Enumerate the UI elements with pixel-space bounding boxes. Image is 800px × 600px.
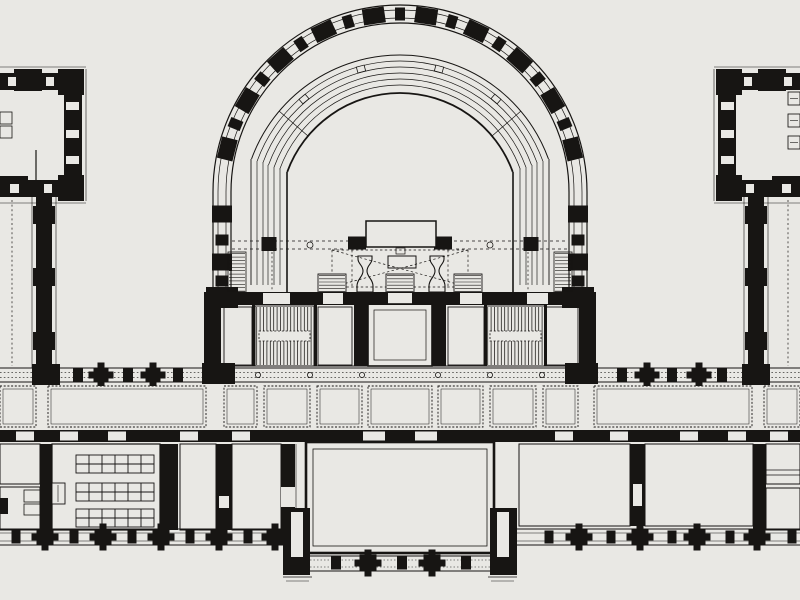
auditorium-outer-ring (206, 5, 594, 308)
west-pavilion (0, 67, 86, 203)
east-gallery-wall (744, 197, 788, 368)
south-range-spine-wall (0, 430, 800, 442)
auditorium-floor-and-tribune (232, 221, 568, 292)
floor-plan-svg (0, 0, 800, 600)
south-east-rooms (519, 444, 800, 530)
south-west-rooms-classroom (0, 444, 296, 530)
corridor-room-band (0, 386, 800, 427)
floor-plan-page (0, 0, 800, 600)
great-hall (283, 442, 517, 581)
south-facade-colonnade (0, 524, 800, 551)
auditorium-south-wall (204, 292, 596, 305)
central-block-and-stairs (204, 303, 596, 367)
east-pavilion (714, 67, 800, 203)
west-gallery-wall (12, 197, 56, 368)
